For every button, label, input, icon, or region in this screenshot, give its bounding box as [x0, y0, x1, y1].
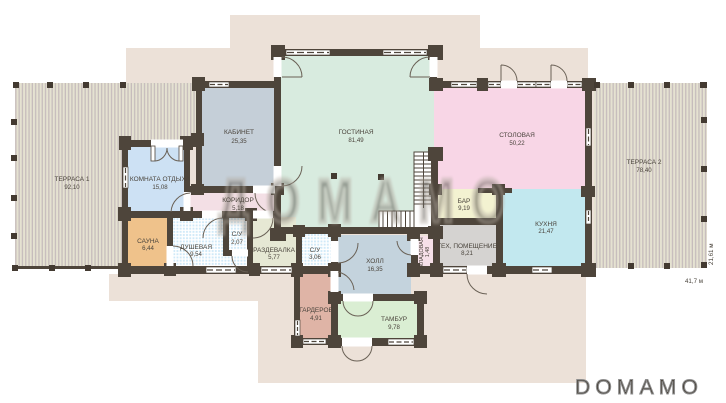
svg-text:ТЕХ, ПОМЕЩЕНИЕ: ТЕХ, ПОМЕЩЕНИЕ: [437, 243, 498, 250]
svg-text:9,78: 9,78: [388, 324, 400, 331]
svg-text:ТЕРРАСА 2: ТЕРРАСА 2: [626, 159, 661, 166]
svg-text:9,19: 9,19: [458, 205, 470, 212]
svg-text:КУХНЯ: КУХНЯ: [535, 221, 557, 228]
svg-text:21,61 м: 21,61 м: [708, 244, 715, 265]
svg-text:4,91: 4,91: [310, 315, 322, 322]
svg-text:ГОСТИНАЯ: ГОСТИНАЯ: [338, 129, 373, 136]
svg-text:78,40: 78,40: [636, 167, 652, 174]
svg-text:САУНА: САУНА: [137, 238, 159, 245]
svg-text:КАБИНЕТ: КАБИНЕТ: [224, 129, 254, 136]
svg-text:DOMAMO: DOMAMO: [575, 376, 703, 399]
svg-text:СТОЛОВАЯ: СТОЛОВАЯ: [499, 132, 535, 139]
svg-text:50,22: 50,22: [509, 140, 525, 147]
svg-text:ТЕРРАСА 1: ТЕРРАСА 1: [54, 176, 89, 183]
svg-text:ТАМБУР: ТАМБУР: [381, 316, 407, 323]
svg-text:16,35: 16,35: [367, 266, 383, 273]
svg-text:15,08: 15,08: [152, 184, 168, 191]
svg-text:8,21: 8,21: [461, 250, 473, 257]
svg-text:3,06: 3,06: [309, 254, 321, 261]
svg-text:С/У: С/У: [310, 247, 322, 254]
svg-text:21,47: 21,47: [538, 228, 554, 235]
svg-text:БАР: БАР: [458, 198, 471, 205]
svg-text:ХОЛЛ: ХОЛЛ: [366, 258, 384, 265]
svg-text:ДУШЕВАЯ: ДУШЕВАЯ: [180, 244, 212, 251]
svg-text:6,44: 6,44: [142, 245, 154, 252]
svg-text:5,18: 5,18: [232, 205, 244, 212]
svg-text:С/У: С/У: [232, 231, 244, 238]
svg-text:РАЗДЕВАЛКА: РАЗДЕВАЛКА: [253, 247, 295, 254]
svg-text:81,49: 81,49: [348, 137, 364, 144]
svg-text:41,7 м: 41,7 м: [685, 278, 703, 285]
svg-text:ДОМАМО: ДОМАМО: [218, 168, 522, 236]
svg-text:9,54: 9,54: [190, 251, 202, 258]
svg-text:5,77: 5,77: [268, 254, 280, 261]
svg-text:КОМНАТА ОТДЫХА: КОМНАТА ОТДЫХА: [130, 176, 191, 183]
svg-text:1,48: 1,48: [425, 247, 431, 258]
svg-text:ГАРДЕРОБ: ГАРДЕРОБ: [299, 307, 333, 314]
svg-text:25,35: 25,35: [231, 138, 247, 145]
svg-text:КОРИДОР: КОРИДОР: [222, 197, 254, 204]
svg-text:2,07: 2,07: [231, 239, 243, 246]
svg-text:92,10: 92,10: [64, 184, 80, 191]
